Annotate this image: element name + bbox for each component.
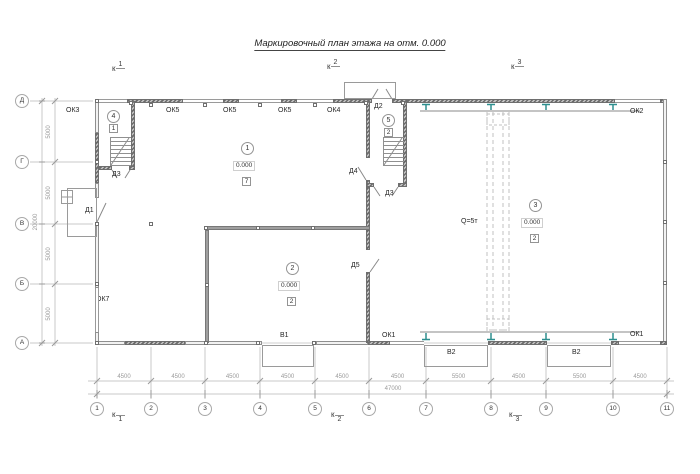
room-3-floor-type: 2	[530, 234, 539, 243]
door-label-d4: Д4	[349, 168, 358, 176]
window-label-ok5: ОК5	[223, 107, 236, 115]
dimension-segment-left: 5000	[46, 247, 52, 260]
floor-plan-canvas: Маркировочный план этажа на отм. 0.000 к…	[0, 0, 700, 474]
window-label-ok4: ОК4	[327, 107, 340, 115]
column-marker	[364, 101, 368, 105]
crane-capacity-label: Q=5т	[461, 218, 478, 226]
column-marker	[205, 283, 209, 287]
dimension-total-left: 20000	[33, 214, 39, 231]
outline-shape	[61, 190, 73, 204]
wall-segment	[99, 166, 112, 170]
outline-shape	[262, 345, 314, 367]
dimension-segment-bottom: 4500	[335, 374, 348, 380]
wall-segment	[97, 341, 125, 345]
door-label-d3: Д3	[112, 171, 121, 179]
staircase	[110, 137, 131, 166]
column-marker	[204, 226, 208, 230]
window-label-ok5: ОК5	[278, 107, 291, 115]
outline-shape	[424, 345, 488, 367]
section-mark-k1-top: к1	[112, 64, 125, 74]
window-label-ok1: ОК1	[382, 332, 395, 340]
section-mark-k3-bottom: к3	[509, 410, 522, 419]
wall-segment	[316, 341, 368, 345]
axis-bubble-col: 9	[539, 402, 553, 416]
wall-segment	[407, 99, 615, 103]
outline-shape	[547, 345, 611, 367]
wall-segment	[97, 99, 127, 103]
column-marker	[149, 222, 153, 226]
column-marker	[95, 282, 99, 286]
room-1-floor-type: 7	[242, 177, 251, 186]
axis-bubble-col: 2	[144, 402, 158, 416]
axis-bubble-col: 6	[362, 402, 376, 416]
axis-bubble-col: 4	[253, 402, 267, 416]
dimension-segment-bottom: 5500	[452, 374, 465, 380]
section-mark-k2-top: к2	[327, 62, 340, 72]
column-marker	[312, 341, 316, 345]
dimension-segment-left: 5000	[46, 186, 52, 199]
window-label-ok1: ОК1	[630, 331, 643, 339]
column-marker	[95, 160, 99, 164]
column-marker	[311, 226, 315, 230]
dimension-segment-left: 5000	[46, 125, 52, 138]
axis-bubble-row: Д	[15, 94, 29, 108]
dimension-segment-bottom: 4500	[226, 374, 239, 380]
room-1-elevation: 0.000	[233, 161, 255, 171]
wall-segment	[127, 99, 183, 103]
outline-shape	[344, 82, 396, 99]
window-label-ok3: ОК3	[66, 107, 79, 115]
wall-segment	[366, 101, 370, 158]
wall-segment	[281, 99, 297, 103]
column-marker	[256, 226, 260, 230]
axis-bubble-col: 10	[606, 402, 620, 416]
wall-segment	[223, 99, 239, 103]
wall-segment	[611, 341, 619, 345]
wall-segment	[95, 99, 99, 133]
wall-segment	[398, 183, 407, 187]
axis-bubble-row: А	[15, 336, 29, 350]
wall-segment	[619, 341, 660, 345]
dimension-segment-bottom: 4500	[512, 374, 525, 380]
section-mark-k2-bottom: к2	[331, 410, 344, 419]
dimension-segment-bottom: 4500	[171, 374, 184, 380]
dimension-segment-bottom: 4500	[117, 374, 130, 380]
axis-bubble-col: 5	[308, 402, 322, 416]
column-marker	[204, 341, 208, 345]
room-number-5: 5	[382, 114, 395, 127]
wall-segment	[125, 341, 185, 345]
column-marker	[203, 103, 207, 107]
column-marker	[95, 341, 99, 345]
dimension-total-bottom: 47000	[385, 386, 402, 392]
plan-linework	[0, 0, 700, 474]
door-label-d2: Д2	[374, 103, 383, 111]
dimension-segment-bottom: 5500	[573, 374, 586, 380]
section-mark-k1-bottom: к1	[112, 410, 125, 419]
column-marker	[258, 103, 262, 107]
column-marker	[95, 222, 99, 226]
column-marker	[313, 103, 317, 107]
wall-segment	[488, 341, 547, 345]
dimension-segment-bottom: 4500	[391, 374, 404, 380]
axis-bubble-col: 3	[198, 402, 212, 416]
wall-segment	[129, 166, 135, 170]
wall-segment	[660, 341, 667, 345]
column-marker	[95, 99, 99, 103]
dimension-segment-left: 5000	[46, 307, 52, 320]
column-marker	[256, 341, 260, 345]
section-mark-k3-top: к3	[511, 62, 524, 72]
column-marker	[149, 103, 153, 107]
room-5-floor-type: 2	[384, 128, 393, 137]
dimension-segment-bottom: 4500	[281, 374, 294, 380]
room-2-elevation: 0.000	[278, 281, 300, 291]
axis-bubble-col: 11	[660, 402, 674, 416]
column-marker	[663, 160, 667, 164]
axis-bubble-col: 8	[484, 402, 498, 416]
crane-trolley-dashed	[487, 114, 509, 330]
gate-label-v1: В1	[280, 332, 289, 340]
room-number-1: 1	[241, 142, 254, 155]
crane-beam-support-marks	[422, 104, 617, 340]
wall-segment	[205, 226, 370, 230]
axis-bubble-row: В	[15, 217, 29, 231]
column-marker	[129, 101, 133, 105]
window-label-ok5: ОК5	[166, 107, 179, 115]
wall-segment	[366, 272, 370, 343]
column-marker	[663, 220, 667, 224]
wall-segment	[185, 341, 262, 345]
wall-segment	[390, 341, 424, 345]
room-number-3: 3	[529, 199, 542, 212]
room-number-2: 2	[286, 262, 299, 275]
axis-bubble-col: 1	[90, 402, 104, 416]
wall-segment	[95, 288, 99, 332]
room-3-elevation: 0.000	[521, 218, 543, 228]
axis-bubble-row: Г	[15, 155, 29, 169]
dimension-segment-bottom: 4500	[633, 374, 646, 380]
axis-bubble-col: 7	[419, 402, 433, 416]
stair-break-lines	[111, 138, 402, 165]
window-label-ok2: ОК2	[630, 108, 643, 116]
room-4-floor-type: 1	[109, 124, 118, 133]
room-2-floor-type: 2	[287, 297, 296, 306]
column-marker	[401, 101, 405, 105]
door-label-d5: Д5	[351, 262, 360, 270]
wall-segment	[368, 341, 390, 345]
wall-segment	[615, 99, 660, 103]
axis-bubble-row: Б	[15, 277, 29, 291]
room-number-4: 4	[107, 110, 120, 123]
wall-segment	[366, 187, 370, 250]
crane-travel-dashed	[487, 112, 509, 332]
wall-segment	[95, 133, 99, 183]
staircase	[383, 137, 404, 166]
column-marker	[663, 281, 667, 285]
wall-segment	[131, 101, 135, 168]
door-label-d3: Д3	[385, 190, 394, 198]
